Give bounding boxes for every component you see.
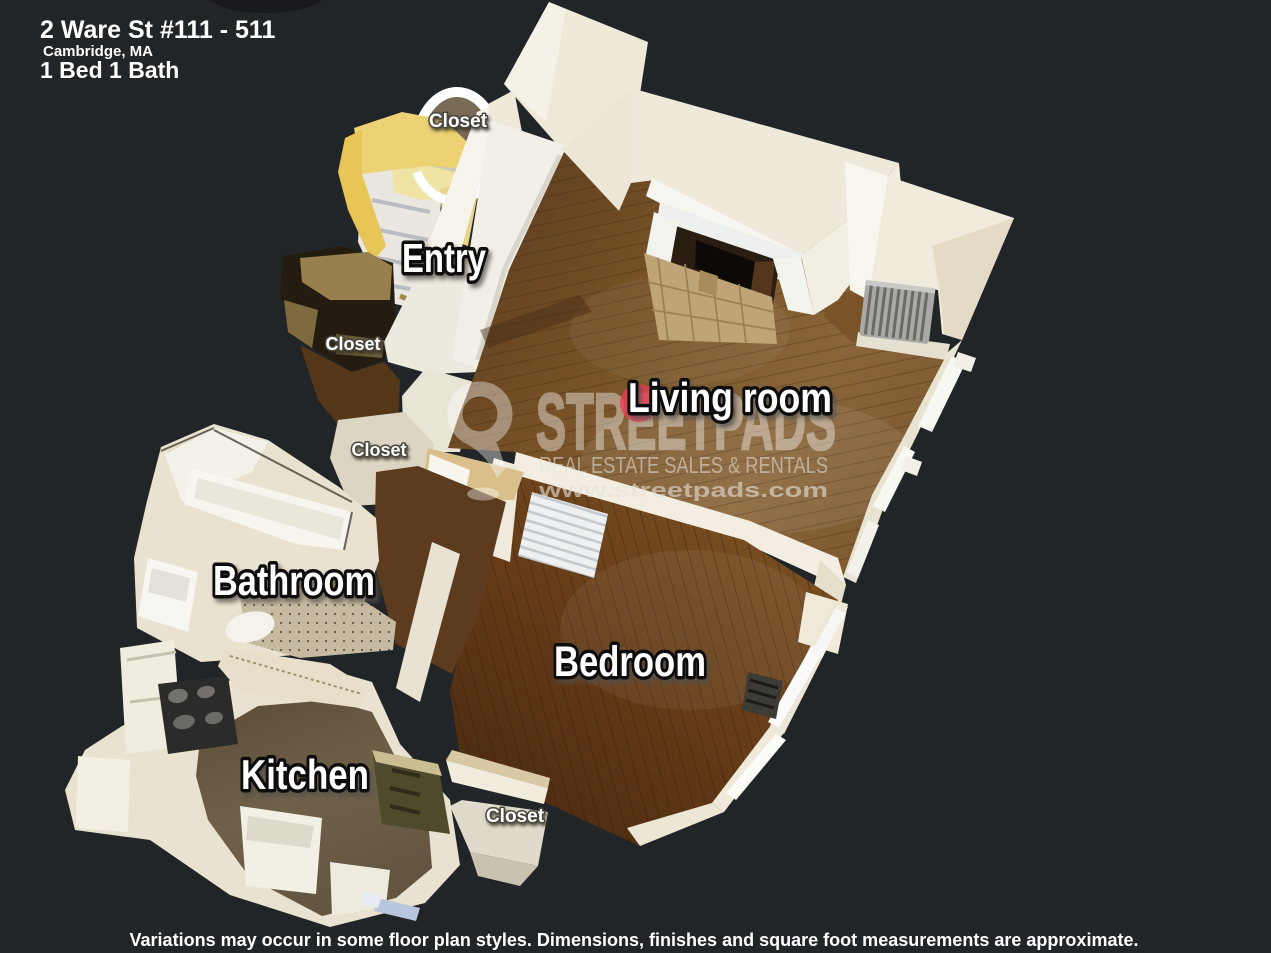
svg-text:www.streetpads.com: www.streetpads.com xyxy=(538,480,828,502)
svg-text:Closet: Closet xyxy=(351,440,406,460)
svg-text:2 Ware St #111 - 511: 2 Ware St #111 - 511 xyxy=(40,16,275,44)
svg-text:Closet: Closet xyxy=(429,111,488,132)
svg-text:Bedroom: Bedroom xyxy=(554,638,706,686)
svg-text:REAL ESTATE SALES & RENTALS: REAL ESTATE SALES & RENTALS xyxy=(539,452,828,478)
svg-text:Entry: Entry xyxy=(402,235,486,281)
svg-text:Kitchen: Kitchen xyxy=(241,751,369,798)
svg-text:Closet: Closet xyxy=(325,334,380,354)
svg-text:Closet: Closet xyxy=(486,806,545,827)
svg-text:1 Bed 1 Bath: 1 Bed 1 Bath xyxy=(40,57,179,83)
svg-text:Living room: Living room xyxy=(628,374,832,421)
svg-text:Variations may occur in some f: Variations may occur in some floor plan … xyxy=(130,929,1139,950)
svg-text:Bathroom: Bathroom xyxy=(213,557,375,604)
